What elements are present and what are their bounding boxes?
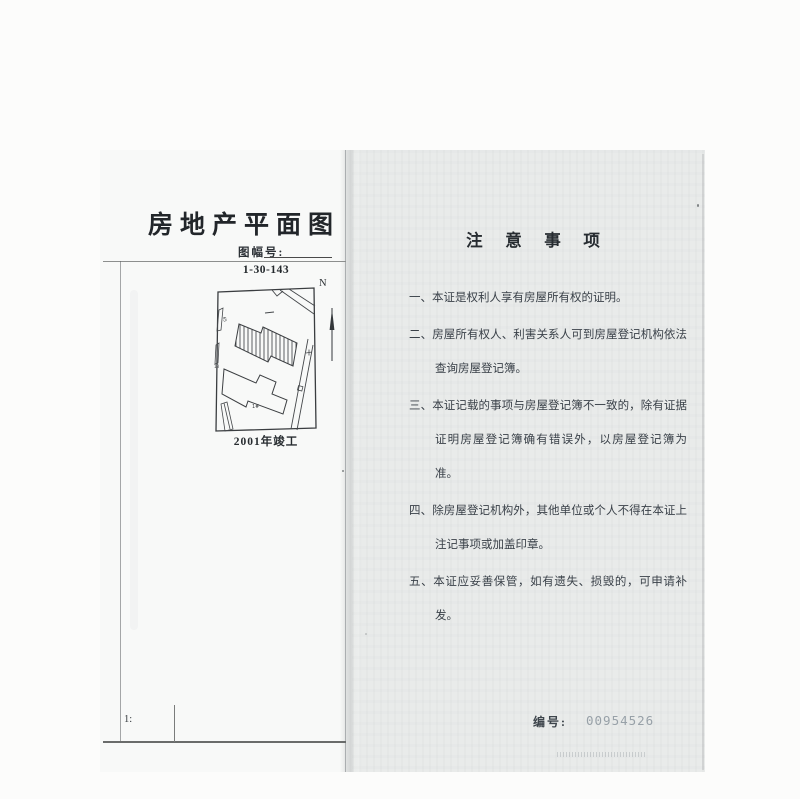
note-text: 本证是权利人享有房屋所有权的证明。 <box>432 292 628 304</box>
road-structure-box <box>297 386 302 391</box>
note-item-4: 四、除房屋登记机构外，其他单位或个人不得在本证上注记事项或加盖印章。 <box>409 494 687 562</box>
note-item-2: 二、房屋所有权人、利害关系人可到房屋登记机构依法查询房屋登记簿。 <box>409 318 687 386</box>
corner-road-lines <box>272 289 315 314</box>
left-parcel-slivers <box>215 308 223 364</box>
bottom-parcel-slivers <box>221 402 233 431</box>
scan-speck <box>697 204 699 207</box>
note-item-5: 五、本证应妥善保管，如有遗失、损毁的，可申请补发。 <box>409 565 687 633</box>
scale-cell-divider <box>174 705 175 742</box>
building-number-label: 1# <box>252 404 259 410</box>
faint-print-artifact <box>557 752 647 757</box>
note-text: 本证记载的事项与房屋登记簿不一致的，除有证据证明房屋登记簿确有错误外，以房屋登记… <box>432 400 687 480</box>
map-sheet-code: 1-30-143 <box>210 264 322 276</box>
note-marker: 二、 <box>409 329 432 341</box>
north-arrow-icon <box>326 303 338 367</box>
center-fold-line <box>345 150 346 772</box>
serial-number-label: 编号: <box>533 713 567 730</box>
scan-speck <box>365 633 367 635</box>
frame-left-rule <box>120 261 121 742</box>
frame-bottom-rule <box>103 741 346 743</box>
scale-label: 1: <box>124 714 132 725</box>
note-item-3: 三、本证记载的事项与房屋登记簿不一致的，除有证据证明房屋登记簿确有错误外，以房屋… <box>409 389 687 491</box>
note-marker: 四、 <box>409 505 432 517</box>
scan-speck <box>342 470 344 472</box>
note-marker: 三、 <box>409 400 432 412</box>
frame-top-rule <box>103 261 346 262</box>
note-text: 本证应妥善保管，如有遗失、损毁的，可申请补发。 <box>433 576 687 622</box>
completion-year-note: 2001年竣工 <box>208 433 324 449</box>
dash-mark <box>265 312 274 313</box>
note-text: 房屋所有权人、利害关系人可到房屋登记机构依法查询房屋登记簿。 <box>432 329 687 375</box>
parcel-label-left: 65 <box>222 316 228 322</box>
page-right-edge <box>702 154 704 770</box>
note-marker: 一、 <box>409 292 432 304</box>
site-plan-map: 1# 65 18 <box>210 283 322 437</box>
scanned-certificate-page: 房地产平面图 图幅号: 1: 1-30-143 1# 65 18 <box>0 0 800 799</box>
north-label: N <box>319 278 327 289</box>
note-item-1: 一、本证是权利人享有房屋所有权的证明。 <box>409 281 687 315</box>
note-text: 除房屋登记机构外，其他单位或个人不得在本证上注记事项或加盖印章。 <box>432 505 687 551</box>
notes-list: 一、本证是权利人享有房屋所有权的证明。 二、房屋所有权人、利害关系人可到房屋登记… <box>409 281 687 636</box>
note-marker: 五、 <box>409 576 433 588</box>
sheet-number-blank-line <box>264 257 332 258</box>
page-title-floor-plan: 房地产平面图 <box>148 205 340 241</box>
ink-bleedthrough-smudge <box>130 290 138 630</box>
notes-title: 注 意 事 项 <box>455 227 620 251</box>
serial-number-value: 00954526 <box>586 713 654 728</box>
parcel-label-lower: 18 <box>214 364 220 369</box>
subject-building-hatched <box>235 324 297 366</box>
